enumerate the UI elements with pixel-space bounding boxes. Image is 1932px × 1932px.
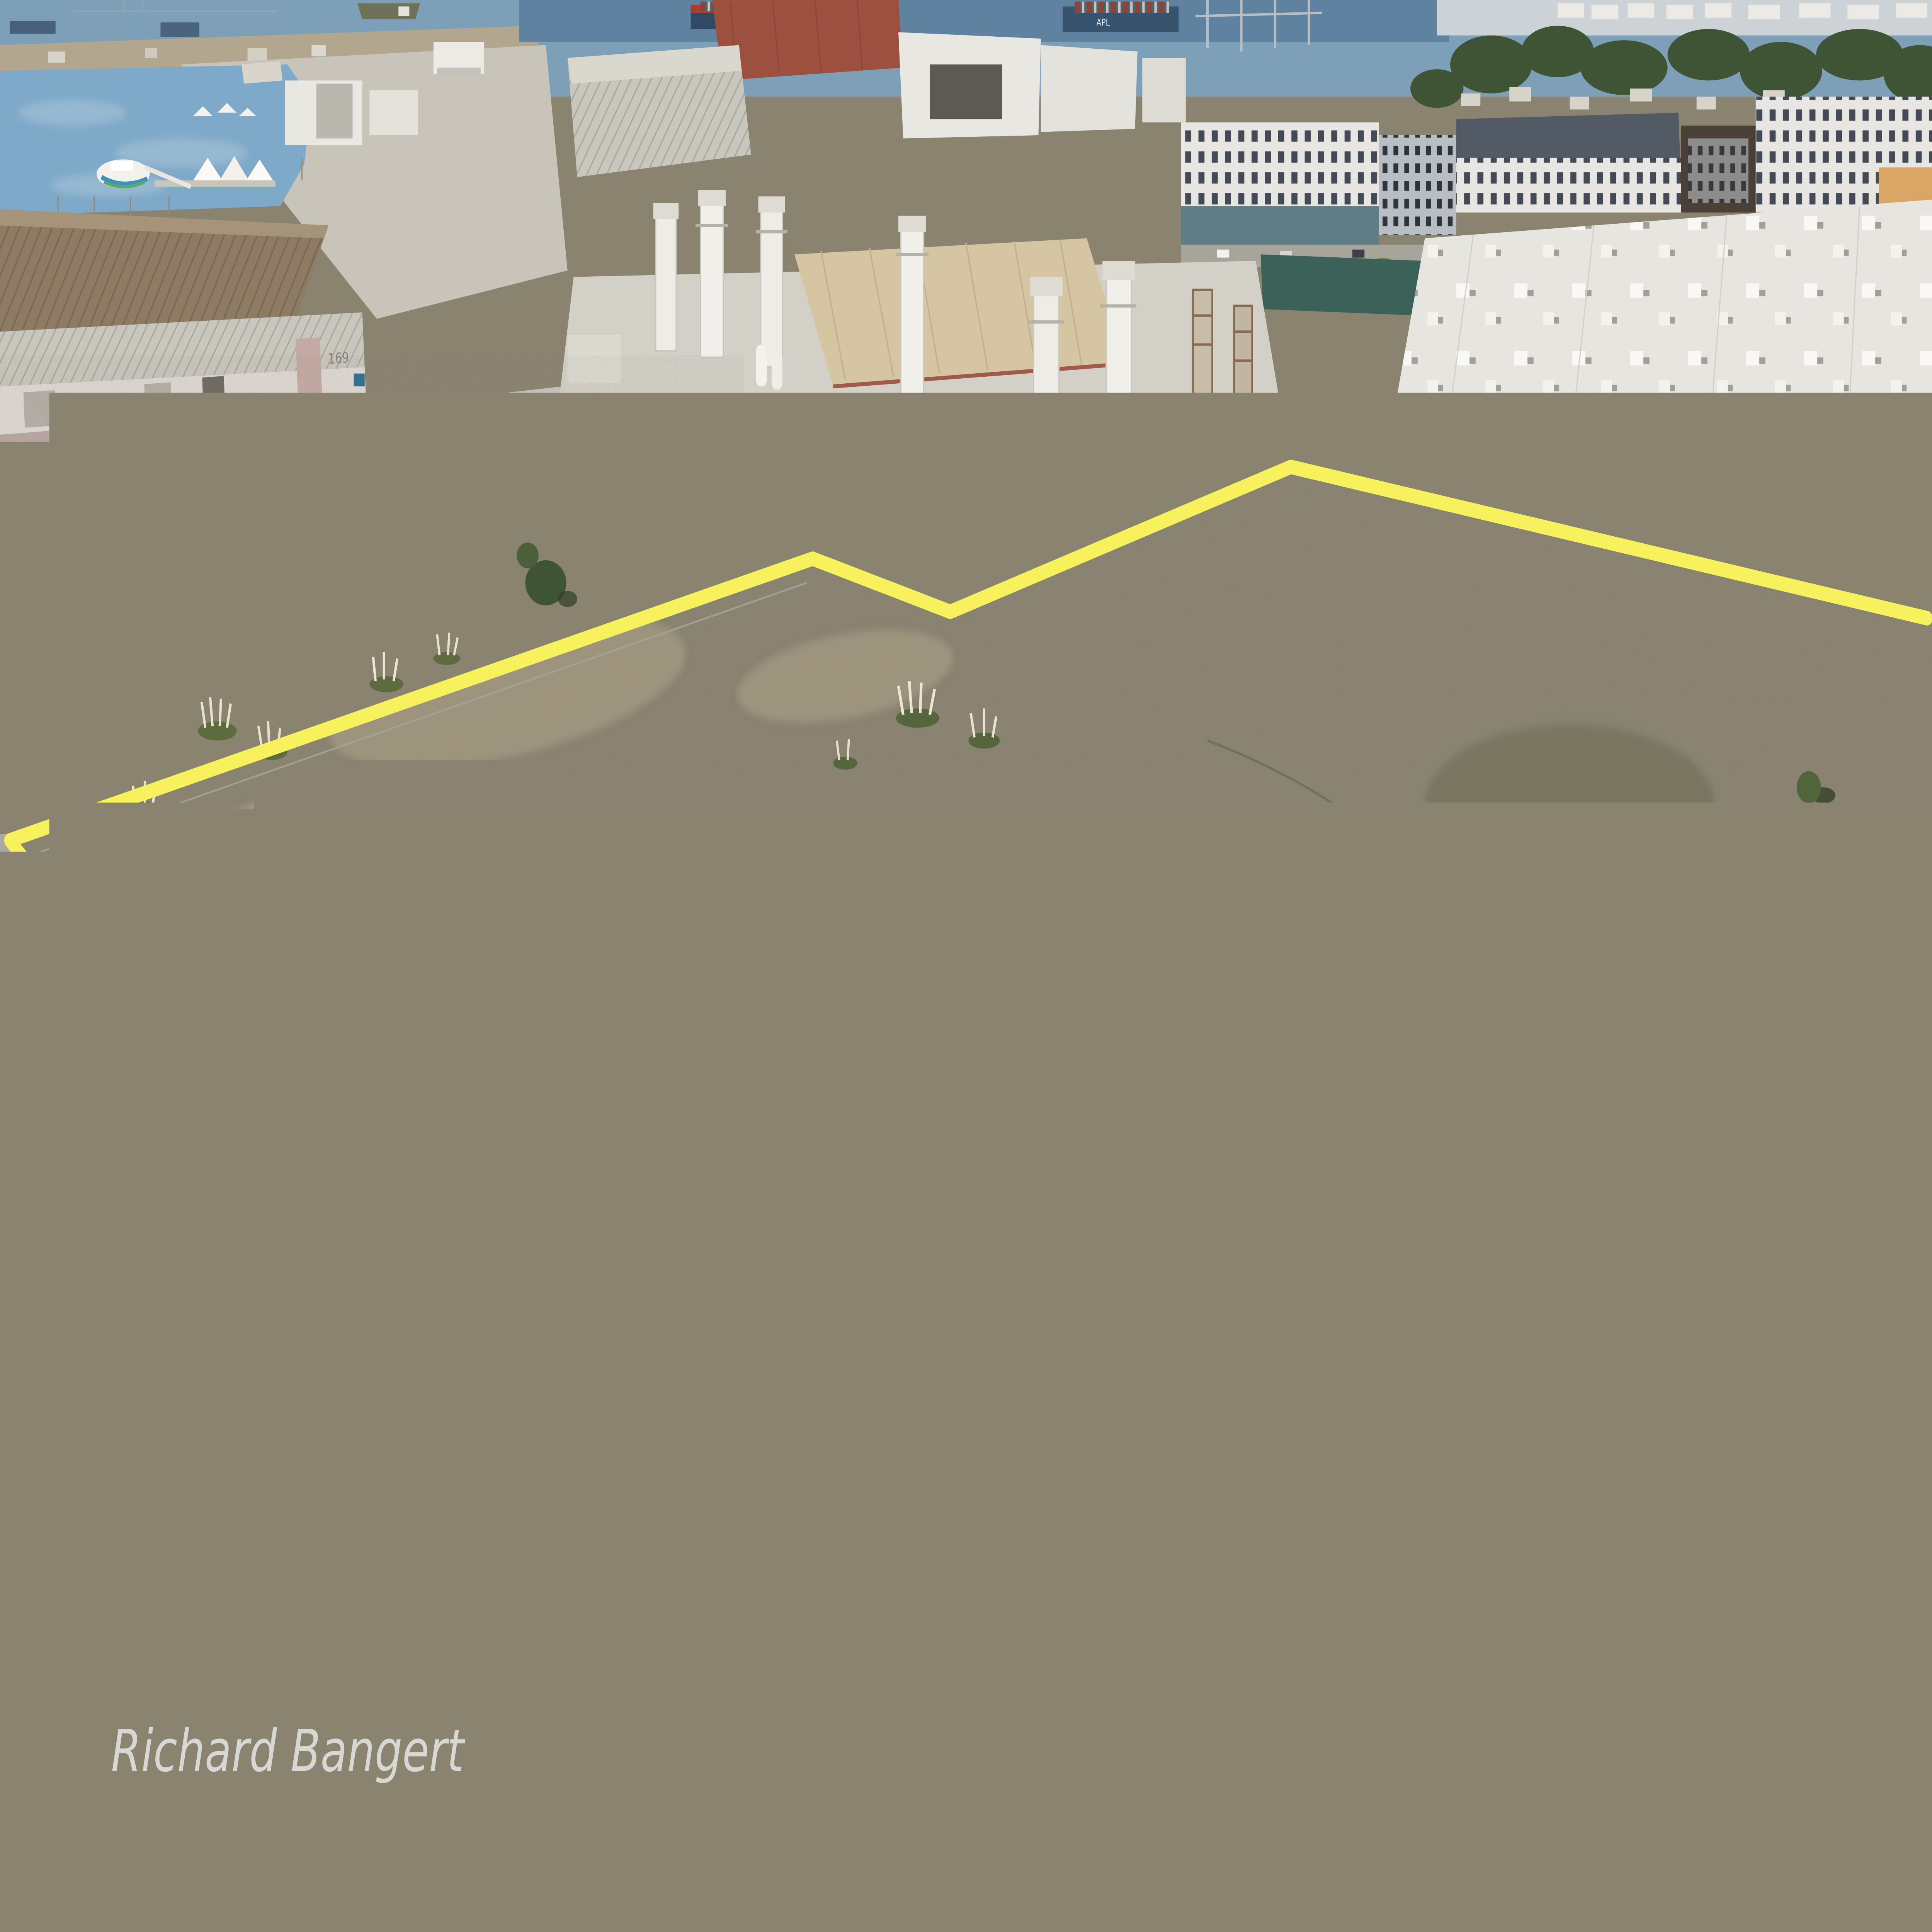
pampas-grass bbox=[434, 633, 460, 665]
exhaust-stack bbox=[756, 196, 787, 367]
tree-shadow bbox=[558, 591, 577, 607]
plant-building bbox=[568, 335, 621, 383]
ship-name-apl: APL bbox=[1097, 17, 1110, 28]
tank-cylinder bbox=[756, 345, 767, 386]
apartment-building-row bbox=[1456, 158, 1681, 213]
exhaust-stack bbox=[696, 190, 728, 357]
building-169-pink-stripe bbox=[296, 337, 323, 410]
aerial-photo-canvas: CMA CGM APL bbox=[0, 0, 1932, 1932]
exhaust-stack bbox=[653, 203, 679, 351]
hangar-door-opening bbox=[930, 65, 1002, 119]
apartment-building-gray bbox=[1379, 135, 1456, 235]
asphalt-pad bbox=[5, 702, 136, 782]
white-hangar-2 bbox=[1041, 45, 1138, 132]
shrub bbox=[459, 472, 483, 494]
ferry-boat bbox=[97, 160, 150, 189]
blue-lift bbox=[1053, 476, 1070, 512]
tank-cylinder bbox=[772, 351, 782, 389]
exhaust-stack bbox=[896, 216, 929, 402]
white-tank-vertical bbox=[1093, 403, 1124, 457]
small-tank bbox=[1010, 483, 1041, 515]
blue-dumpster bbox=[354, 374, 365, 386]
island bbox=[357, 3, 420, 19]
construction-fence-green bbox=[1261, 254, 1423, 315]
roof-hvac-units bbox=[1386, 200, 1932, 457]
building-169-number: 169 bbox=[328, 349, 349, 367]
small-building bbox=[1142, 58, 1186, 122]
apartment-storefront-band bbox=[1181, 206, 1379, 248]
flag-banner bbox=[1060, 1761, 1078, 1797]
plant-canopy-roof bbox=[794, 238, 1125, 386]
watermark: Richard Bangert bbox=[111, 1718, 466, 1785]
utility-pole bbox=[1020, 1703, 1023, 1932]
aerial-photo: CMA CGM APL bbox=[0, 0, 1932, 1932]
exhaust-stack bbox=[1027, 277, 1064, 483]
container-ship-apl: APL bbox=[1063, 2, 1179, 32]
